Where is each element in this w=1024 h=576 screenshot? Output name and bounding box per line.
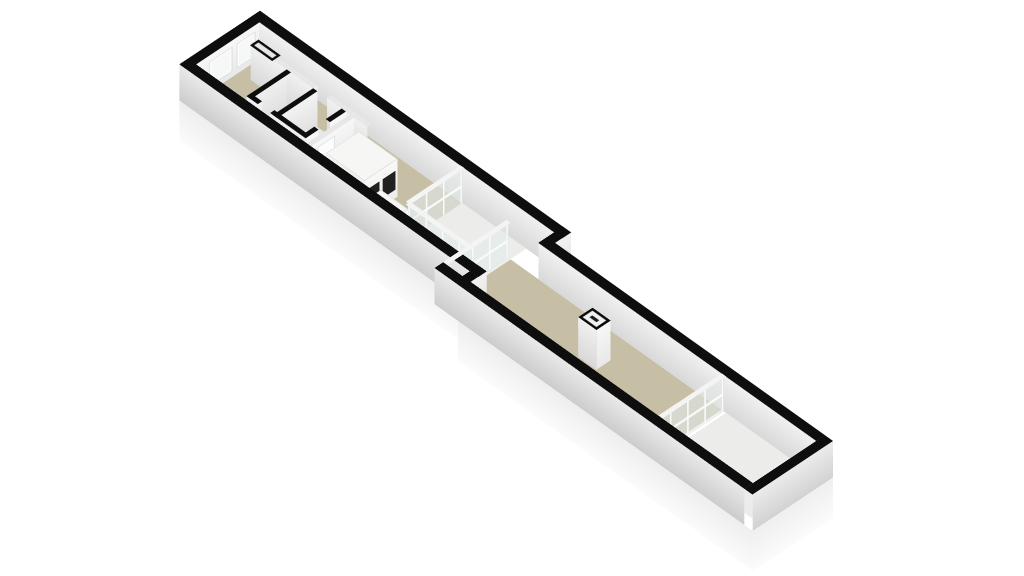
floorplan-canvas: [0, 0, 1024, 576]
